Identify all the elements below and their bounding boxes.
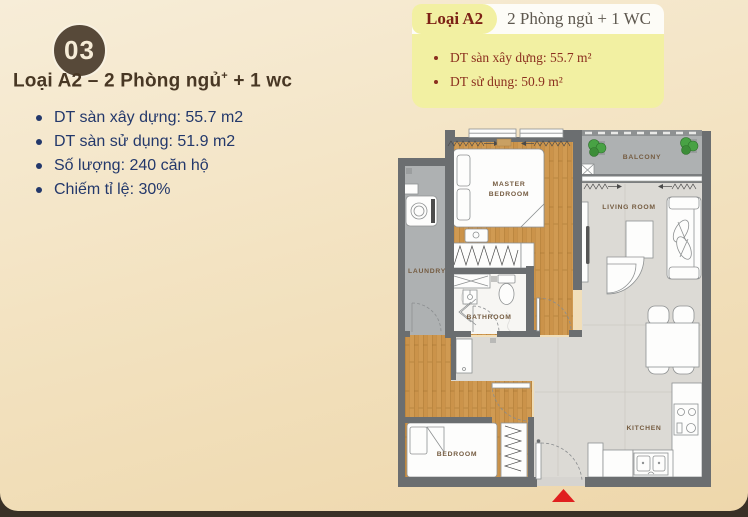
wall-box	[406, 168, 412, 174]
list-item: Chiếm tỉ lệ: 30%	[36, 178, 243, 202]
page-title-superscript: +	[221, 70, 228, 82]
card-item-label: DT sàn xây dựng: 55.7 m²	[450, 50, 592, 66]
list-item-label: Số lượng: 240 căn hộ	[54, 157, 209, 175]
type-label-pill: Loại A2	[412, 4, 497, 34]
shoe-cabinet-tall	[588, 443, 603, 477]
entrance-marker	[552, 489, 575, 502]
toilet	[498, 275, 515, 305]
bullet-dot-icon	[36, 115, 42, 121]
shoe-cabinet-low	[603, 450, 633, 477]
hall-box	[490, 338, 496, 343]
card-list-item: DT sử dụng: 50.9 m²	[434, 70, 654, 94]
room-label-living: LIVING ROOM	[602, 204, 655, 211]
balcony-plant-icon	[681, 138, 699, 155]
list-item-label: DT sàn xây dựng: 55.7 m2	[54, 109, 243, 127]
stove	[674, 404, 698, 435]
laundry-shelf	[404, 184, 418, 194]
card-item-label: DT sử dụng: 50.9 m²	[450, 74, 563, 90]
bullet-dot-icon	[434, 80, 438, 84]
bullet-dot-icon	[36, 163, 42, 169]
bullet-dot-icon	[36, 139, 42, 145]
page-title-text: Loại A2 – 2 Phòng ngủ	[13, 70, 221, 91]
bedroom-bed	[407, 423, 497, 477]
card-header: Loại A2 2 Phòng ngủ + 1 WC	[412, 4, 664, 34]
room-label-balcony: BALCONY	[623, 154, 662, 161]
floor-plan: MASTER BEDROOM LAUNDRY BATHROOM BEDROOM …	[394, 126, 718, 508]
master-dresser	[465, 229, 488, 242]
room-label-bathroom: BATHROOM	[466, 314, 511, 321]
list-item: Số lượng: 240 căn hộ	[36, 154, 243, 178]
master-wardrobe	[452, 243, 534, 268]
sofa	[667, 197, 701, 279]
card-body: DT sàn xây dựng: 55.7 m² DT sử dụng: 50.…	[412, 34, 664, 108]
bath-accessory	[491, 276, 497, 282]
card-subtitle: 2 Phòng ngủ + 1 WC	[507, 9, 651, 29]
hall-cabinet	[456, 339, 472, 373]
page-title: Loại A2 – 2 Phòng ngủ+ + 1 wc	[13, 70, 292, 92]
room-label-master-1: MASTER	[493, 181, 526, 188]
list-item-label: Chiếm tỉ lệ: 30%	[54, 181, 171, 199]
page-title-suffix: + 1 wc	[228, 70, 292, 91]
page-background: 03 Loại A2 – 2 Phòng ngủ+ + 1 wc DT sàn …	[0, 0, 748, 511]
kitchen-sink	[634, 453, 668, 475]
coffee-table	[626, 221, 653, 258]
apartment-type-card: Loại A2 2 Phòng ngủ + 1 WC DT sàn xây dự…	[412, 4, 664, 108]
room-label-laundry: LAUNDRY	[408, 268, 446, 275]
card-list-item: DT sàn xây dựng: 55.7 m²	[434, 46, 654, 70]
list-item: DT sàn xây dựng: 55.7 m2	[36, 106, 243, 130]
bathroom-vanity	[452, 274, 490, 288]
bullet-dot-icon	[434, 56, 438, 60]
room-label-bedroom: BEDROOM	[437, 451, 477, 458]
room-label-kitchen: KITCHEN	[626, 425, 661, 432]
balcony-plant-icon	[589, 140, 607, 157]
bathroom-sink	[463, 290, 477, 304]
list-item: DT sàn sử dụng: 51.9 m2	[36, 130, 243, 154]
room-label-master-2: BEDROOM	[489, 191, 529, 198]
apartment-info-list: DT sàn xây dựng: 55.7 m2 DT sàn sử dụng:…	[36, 106, 243, 202]
list-item-label: DT sàn sử dụng: 51.9 m2	[54, 133, 235, 151]
washing-machine	[406, 196, 437, 226]
bullet-dot-icon	[36, 187, 42, 193]
bedroom-wardrobe	[501, 423, 527, 477]
master-bed	[453, 149, 544, 227]
